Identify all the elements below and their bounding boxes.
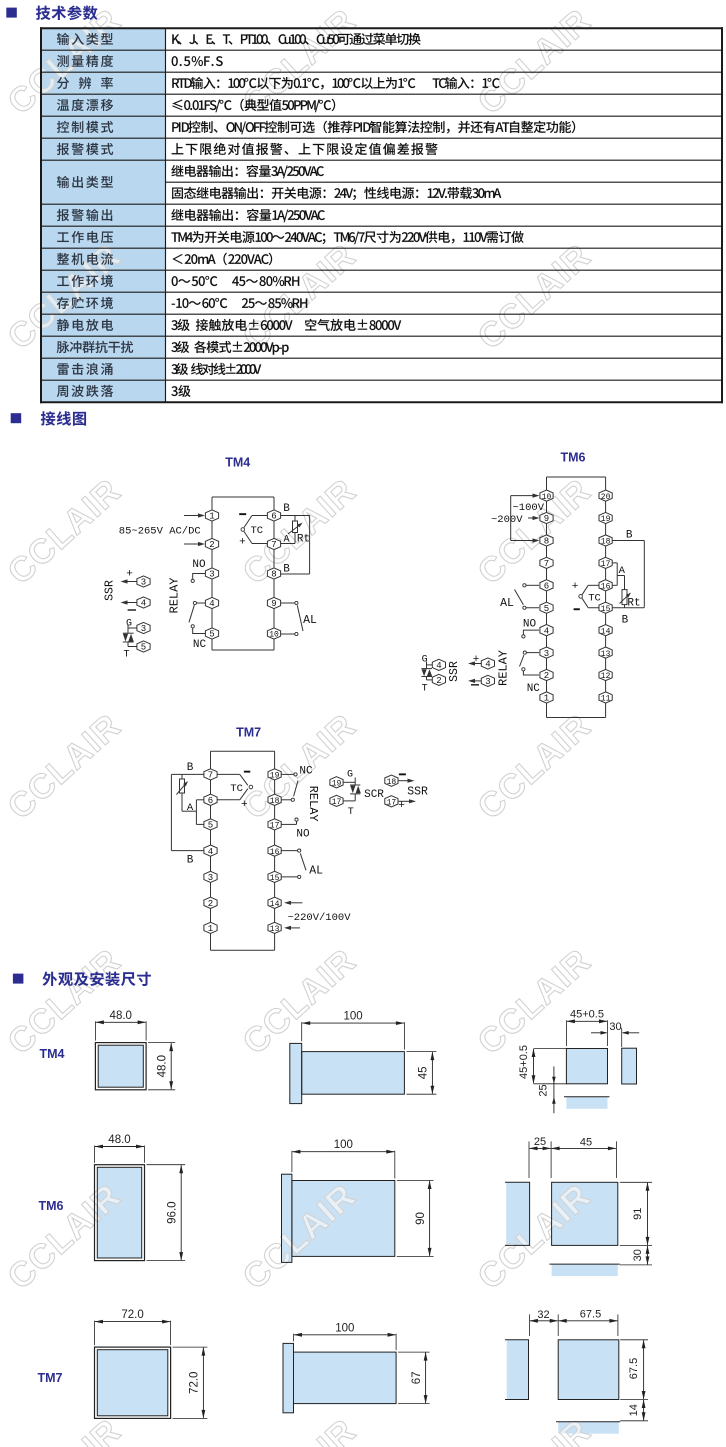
svg-text:67.5: 67.5 <box>628 1358 640 1379</box>
svg-text:B: B <box>283 503 290 515</box>
svg-text:4: 4 <box>208 847 213 857</box>
svg-text:+: + <box>398 800 405 812</box>
svg-text:NO: NO <box>192 559 206 571</box>
svg-text:NC: NC <box>299 766 313 778</box>
svg-text:+: + <box>473 654 480 666</box>
svg-text:9: 9 <box>544 514 549 524</box>
svg-text:NC: NC <box>193 639 207 651</box>
svg-text:30: 30 <box>632 1249 644 1261</box>
svg-text:91: 91 <box>632 1208 644 1220</box>
svg-text:67: 67 <box>411 1371 423 1384</box>
svg-text:SCR: SCR <box>364 789 384 801</box>
svg-text:5: 5 <box>208 821 213 831</box>
svg-text:17: 17 <box>332 798 342 807</box>
svg-text:11: 11 <box>601 695 611 704</box>
svg-text:12: 12 <box>601 672 611 681</box>
svg-text:48.0: 48.0 <box>156 1055 168 1077</box>
svg-text:3: 3 <box>485 677 490 687</box>
svg-text:TM4: TM4 <box>40 1047 65 1061</box>
svg-text:TM6: TM6 <box>561 451 586 465</box>
svg-text:2: 2 <box>436 676 441 686</box>
svg-text:+: + <box>126 569 133 581</box>
svg-text:45: 45 <box>580 1137 592 1149</box>
svg-text:20: 20 <box>601 493 611 502</box>
svg-text:+: + <box>572 581 579 593</box>
svg-text:3: 3 <box>544 649 549 659</box>
svg-text:2: 2 <box>208 899 213 909</box>
svg-text:7: 7 <box>271 540 276 550</box>
svg-text:72.0: 72.0 <box>189 1372 201 1394</box>
svg-text:A: A <box>283 535 289 546</box>
svg-text:10: 10 <box>542 493 552 502</box>
svg-text:13: 13 <box>601 650 611 659</box>
svg-text:45: 45 <box>418 1067 430 1080</box>
svg-text:NC: NC <box>527 683 541 695</box>
svg-text:3: 3 <box>141 624 146 634</box>
svg-text:TC: TC <box>250 525 263 537</box>
svg-text:45+0.5: 45+0.5 <box>570 1009 604 1021</box>
svg-text:A: A <box>187 802 194 814</box>
svg-text:4: 4 <box>485 660 490 670</box>
svg-text:4: 4 <box>544 626 549 636</box>
svg-text:1: 1 <box>544 694 549 704</box>
svg-text:T: T <box>422 684 428 695</box>
svg-text:AL: AL <box>303 614 317 627</box>
svg-text:16: 16 <box>601 583 611 592</box>
svg-text:T: T <box>123 650 129 661</box>
svg-text:B: B <box>187 855 194 867</box>
svg-text:13: 13 <box>270 925 280 934</box>
svg-text:18: 18 <box>601 538 611 547</box>
svg-text:AL: AL <box>500 597 514 610</box>
svg-text:19: 19 <box>332 780 342 789</box>
svg-text:B: B <box>187 762 194 774</box>
svg-text:A: A <box>619 565 626 577</box>
svg-text:6: 6 <box>208 796 213 806</box>
svg-text:25: 25 <box>534 1136 546 1148</box>
svg-text:67.5: 67.5 <box>580 1309 601 1321</box>
svg-text:90: 90 <box>415 1212 427 1225</box>
svg-text:~100V: ~100V <box>513 502 545 514</box>
svg-text:7: 7 <box>208 771 213 781</box>
svg-text:B: B <box>626 530 633 542</box>
svg-text:RELAY: RELAY <box>168 577 182 613</box>
svg-text:10: 10 <box>269 631 279 640</box>
svg-text:SSR: SSR <box>104 580 117 601</box>
svg-text:25: 25 <box>538 1084 550 1096</box>
svg-text:+: + <box>241 799 248 811</box>
svg-text:NO: NO <box>296 829 310 841</box>
svg-text:8: 8 <box>544 537 549 547</box>
svg-text:TM6: TM6 <box>39 1199 64 1213</box>
svg-text:5: 5 <box>141 643 146 653</box>
svg-text:B: B <box>622 614 629 626</box>
svg-text:19: 19 <box>601 515 611 524</box>
svg-text:15: 15 <box>601 605 611 614</box>
svg-text:100: 100 <box>335 1322 354 1334</box>
svg-text:17: 17 <box>601 560 611 569</box>
svg-text:4: 4 <box>141 599 146 609</box>
svg-text:RELAY: RELAY <box>497 650 511 686</box>
svg-text:TM4: TM4 <box>225 456 250 470</box>
svg-text:85~265V AC/DC: 85~265V AC/DC <box>119 526 201 538</box>
svg-text:Rt: Rt <box>627 598 640 610</box>
svg-text:Rt: Rt <box>297 534 310 546</box>
svg-text:1: 1 <box>208 924 213 934</box>
svg-text:4: 4 <box>209 599 214 609</box>
svg-text:TM7: TM7 <box>236 726 261 740</box>
svg-text:15: 15 <box>270 874 280 883</box>
svg-text:SSR: SSR <box>448 661 461 682</box>
svg-text:16: 16 <box>270 848 280 857</box>
svg-text:18: 18 <box>387 778 397 787</box>
svg-text:17: 17 <box>270 822 280 831</box>
svg-text:G: G <box>347 770 353 781</box>
svg-text:AL: AL <box>309 865 323 878</box>
svg-text:TC: TC <box>230 783 243 795</box>
svg-text:3: 3 <box>209 570 214 580</box>
svg-text:30: 30 <box>609 1021 621 1033</box>
svg-text:3: 3 <box>141 578 146 588</box>
svg-text:2: 2 <box>209 540 214 550</box>
svg-text:7: 7 <box>544 559 549 569</box>
svg-text:72.0: 72.0 <box>121 1309 143 1321</box>
svg-text:NO: NO <box>523 619 537 631</box>
svg-text:18: 18 <box>270 797 280 806</box>
svg-text:48.0: 48.0 <box>110 1010 132 1022</box>
svg-text:4: 4 <box>436 661 441 671</box>
svg-text:14: 14 <box>270 900 280 909</box>
svg-text:100: 100 <box>343 1011 362 1023</box>
svg-text:1: 1 <box>209 512 214 522</box>
svg-text:5: 5 <box>544 604 549 614</box>
svg-text:6: 6 <box>544 582 549 592</box>
svg-text:32: 32 <box>537 1309 549 1321</box>
svg-text:3: 3 <box>208 873 213 883</box>
svg-text:TC: TC <box>588 593 601 605</box>
svg-text:45+0.5: 45+0.5 <box>518 1045 530 1079</box>
svg-text:+: + <box>239 536 246 548</box>
svg-text:100: 100 <box>334 1139 353 1151</box>
svg-text:17: 17 <box>387 799 397 808</box>
svg-text:9: 9 <box>271 599 276 609</box>
svg-text:2: 2 <box>544 671 549 681</box>
svg-text:8: 8 <box>271 570 276 580</box>
svg-text:5: 5 <box>209 630 214 640</box>
svg-text:48.0: 48.0 <box>108 1134 130 1146</box>
svg-text:6: 6 <box>271 512 276 522</box>
svg-text:~220V/100V: ~220V/100V <box>288 912 352 924</box>
svg-text:14: 14 <box>628 1404 640 1416</box>
svg-text:SSR: SSR <box>407 785 428 798</box>
svg-text:14: 14 <box>601 627 611 636</box>
svg-text:T: T <box>348 807 354 818</box>
svg-text:~200V: ~200V <box>491 514 523 526</box>
svg-text:TM7: TM7 <box>38 1371 63 1385</box>
svg-text:RELAY: RELAY <box>306 786 320 822</box>
svg-text:19: 19 <box>270 772 280 781</box>
svg-text:96.0: 96.0 <box>166 1201 178 1223</box>
